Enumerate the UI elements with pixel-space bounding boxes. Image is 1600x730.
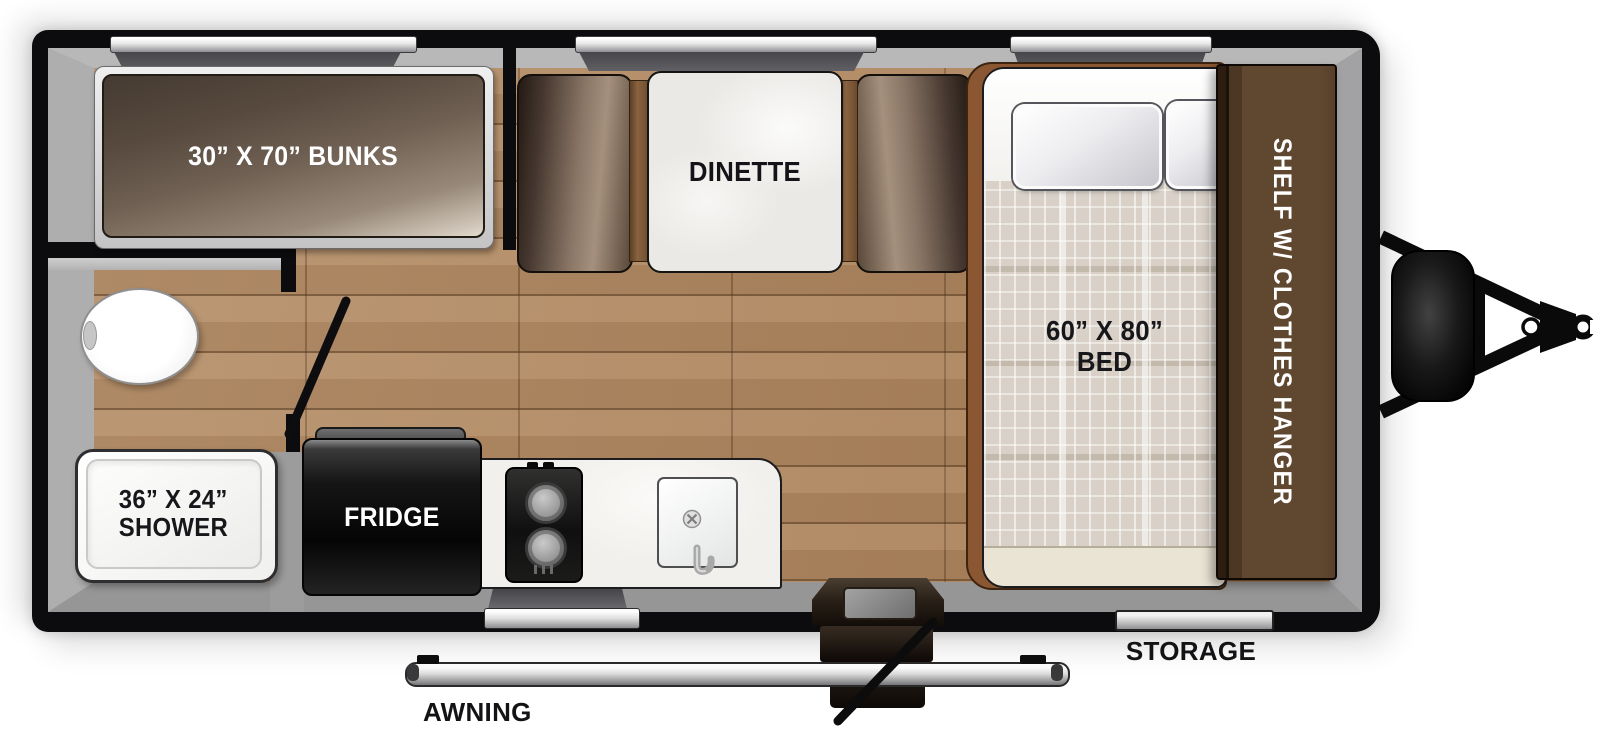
shower-name-label: SHOWER — [119, 513, 228, 541]
toilet-hinge — [83, 321, 97, 350]
entry-step-pad — [843, 587, 917, 620]
hitch-frame-bottom-bar — [1381, 332, 1552, 412]
dinette-bench-right — [856, 74, 972, 273]
storage-hatch — [1115, 610, 1274, 631]
kitchen-sink — [657, 477, 738, 568]
cooktop-vent — [534, 565, 537, 574]
awning-label-text: AWNING — [423, 697, 532, 727]
bed-size-label: 60” X 80” — [994, 315, 1216, 346]
trailer-hitch — [1381, 237, 1599, 412]
cooktop-vent — [542, 565, 545, 574]
awning-bar — [405, 662, 1070, 687]
bed-foot-band — [984, 546, 1225, 586]
shower-label: 36” X 24” SHOWER — [75, 449, 272, 577]
bunk-label: 30” X 70” BUNKS — [189, 141, 399, 172]
bathroom-wall-stub — [281, 242, 296, 292]
kitchen-window — [484, 608, 640, 629]
awning-bracket — [1020, 655, 1046, 664]
tongue-jack — [1523, 319, 1539, 335]
entry-step — [820, 626, 933, 662]
hitch-ball-socket-gap — [1590, 320, 1599, 334]
storage-label-text: STORAGE — [1126, 636, 1256, 666]
fridge: FRIDGE — [302, 438, 482, 596]
floorplan-canvas: 30” X 70” BUNKS DINETTE 60” X 80” BED SH… — [0, 0, 1600, 730]
dinette-label: DINETTE — [689, 156, 801, 188]
bathroom-wall-trim — [48, 258, 282, 270]
awning-label: AWNING — [423, 697, 532, 728]
kitchen-window-sill — [488, 589, 627, 609]
storage-label: STORAGE — [1110, 636, 1272, 667]
dinette-table: DINETTE — [647, 71, 843, 273]
bunk-window — [110, 36, 417, 53]
bed-name-label: BED — [994, 346, 1216, 377]
cooktop-knob — [543, 462, 554, 469]
toilet — [80, 288, 199, 385]
awning-bracket — [417, 655, 439, 664]
cooktop-vent — [550, 565, 553, 574]
awning-bar-cap — [407, 664, 419, 681]
bed-window — [1010, 36, 1212, 53]
awning-bar-cap — [1051, 664, 1063, 681]
propane-tank — [1392, 251, 1474, 401]
dinette-bench-left — [517, 74, 633, 273]
bunk-room-divider-wall — [503, 47, 516, 250]
burner — [525, 482, 567, 524]
dinette-window-sill — [579, 52, 864, 71]
bed-label: 60” X 80” BED — [984, 315, 1225, 377]
dinette-window — [575, 36, 877, 53]
shower-size-label: 36” X 24” — [119, 485, 228, 513]
shelf-label: SHELF W/ CLOTHES HANGER — [1267, 138, 1296, 506]
bunk-bed: 30” X 70” BUNKS — [102, 74, 485, 238]
burner — [525, 527, 567, 569]
shelf-with-clothes-hanger: SHELF W/ CLOTHES HANGER — [1216, 64, 1337, 580]
pillow — [1013, 104, 1162, 189]
cooktop-knob — [527, 462, 538, 469]
hitch-coupler — [1540, 301, 1576, 353]
fridge-label: FRIDGE — [344, 502, 440, 533]
hitch-ball-socket — [1574, 318, 1592, 336]
hitch-frame-top-bar — [1381, 237, 1552, 318]
